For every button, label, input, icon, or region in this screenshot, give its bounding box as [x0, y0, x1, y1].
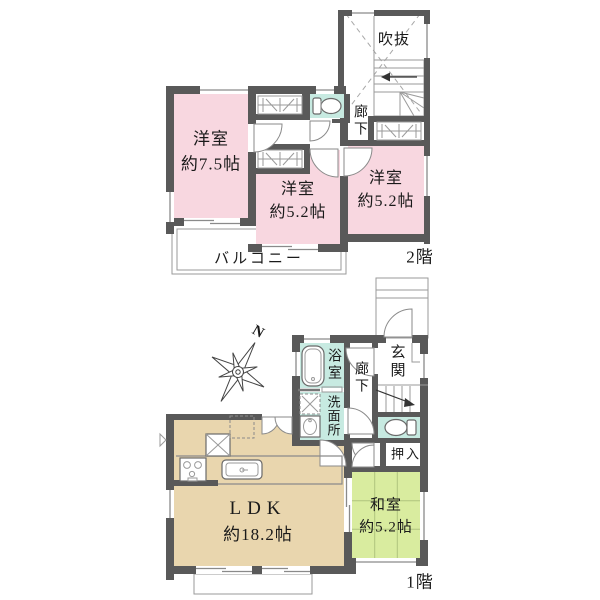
label-balcony: バルコニー [214, 249, 304, 271]
label-western-room-1: 洋室 約7.5帖 [181, 127, 241, 176]
closet-2f-top [258, 96, 302, 114]
bathtub-icon [302, 346, 324, 386]
label-corridor-1f: 廊下 [353, 361, 367, 395]
label-japanese-room: 和室 約5.2帖 [359, 495, 413, 539]
label-western-room-3: 洋室 約5.2帖 [357, 167, 414, 213]
closet-2f-center [258, 150, 302, 168]
washbasin-icon [300, 416, 320, 437]
entrance-step [412, 343, 420, 362]
sliding-door-washitsu [344, 478, 352, 532]
terrace [194, 574, 312, 594]
closet-2f-right [377, 122, 421, 140]
label-floor2: 2階 [406, 246, 434, 271]
label-washroom: 洗面所 [327, 395, 340, 437]
floor-plan: 吹抜 廊下 洋室 約7.5帖 洋室 約5.2帖 洋室 約5.2帖 バルコニー 2… [0, 0, 600, 600]
label-ldk: LDK 約18.2帖 [223, 495, 293, 547]
label-floor1: 1階 [406, 571, 434, 596]
toilet-2f-icon [313, 98, 341, 114]
label-oshiire: 押入 [391, 446, 421, 465]
label-corridor-2f: 廊下 [352, 104, 366, 138]
stairs-up-arrow-2f [381, 73, 390, 82]
floor-plan-linework [0, 0, 600, 600]
compass-rose [195, 328, 281, 417]
floor1-plan [160, 278, 428, 594]
washing-machine-icon [300, 394, 320, 414]
sink-icon [222, 460, 262, 479]
refrigerator-space-icon [206, 434, 230, 456]
vent-marker [160, 434, 166, 446]
label-bath: 浴室 [326, 348, 340, 382]
label-western-room-2: 洋室 約5.2帖 [269, 178, 326, 224]
label-void: 吹抜 [378, 30, 410, 52]
label-entrance: 玄関 [389, 344, 404, 380]
toilet-1f-icon [385, 420, 416, 436]
stove-icon [180, 458, 206, 481]
